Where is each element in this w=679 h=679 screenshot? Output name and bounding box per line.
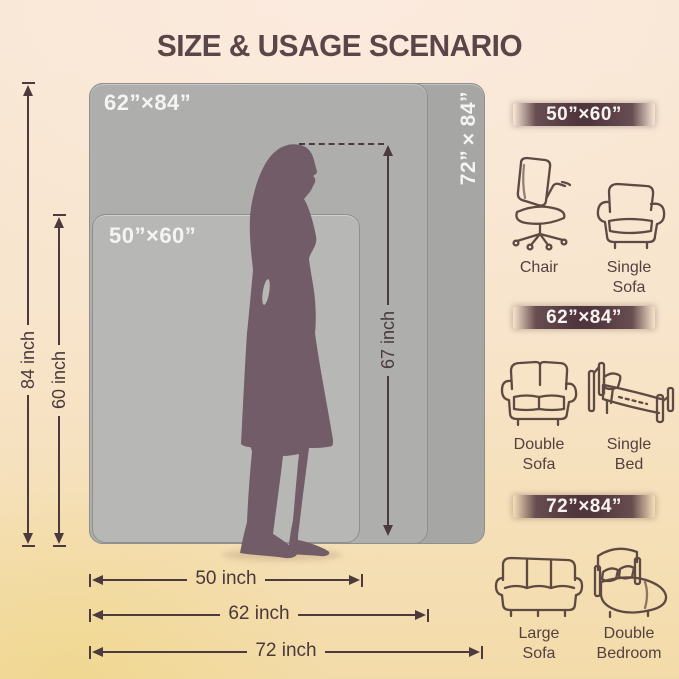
dim-62-inch: 62 inch	[89, 605, 429, 625]
dim-line	[27, 395, 29, 533]
single-sofa-icon	[588, 176, 670, 252]
arrow-left-icon	[92, 647, 103, 657]
dim-cap	[53, 545, 66, 547]
dim-72-label: 72 inch	[247, 640, 324, 662]
size-badge-62x84: 62”×84”	[513, 306, 655, 329]
usage-item-chair	[496, 156, 582, 252]
usage-item-single-bed	[586, 355, 672, 429]
dim-62-label: 62 inch	[220, 603, 297, 625]
standing-woman-silhouette	[212, 142, 352, 562]
usage-item-single-sofa	[586, 176, 672, 252]
office-chair-icon	[505, 156, 573, 252]
arrow-up-icon	[23, 85, 33, 96]
single-bed-icon	[583, 355, 675, 429]
size-usage-infographic: SIZE & USAGE SCENARIO 72”×84” 62”×84” 50…	[0, 0, 679, 679]
arrow-right-icon	[349, 575, 360, 585]
blanket-rect-62x84-label: 62”×84”	[104, 90, 191, 116]
usage-label-double-sofa: Double Sofa	[496, 435, 582, 476]
dim-line	[103, 614, 220, 616]
usage-label-single-bed: Single Bed	[586, 435, 672, 476]
dim-line	[387, 376, 389, 525]
dim-cap	[427, 609, 429, 622]
dim-line	[27, 96, 29, 325]
arrow-right-icon	[469, 647, 480, 657]
dim-cap	[361, 574, 363, 587]
head-height-dashed-line	[299, 143, 384, 145]
dim-line	[387, 156, 389, 305]
dim-line	[58, 228, 60, 345]
dim-cap	[53, 214, 66, 216]
dim-84-label: 84 inch	[18, 325, 39, 395]
usage-label-double-bed: Double Bedroom	[586, 624, 672, 665]
size-badge-50x60: 50”×60”	[513, 103, 655, 126]
dim-line	[265, 579, 349, 581]
dim-cap	[22, 82, 35, 84]
usage-item-double-sofa	[496, 355, 582, 429]
arrow-down-icon	[23, 533, 33, 544]
dim-67-label: 67 inch	[378, 305, 399, 375]
dim-50-inch: 50 inch	[89, 570, 363, 590]
dim-84-inch: 84 inch	[17, 82, 39, 547]
scenario-72x84: 72”×84”	[494, 495, 674, 665]
dim-line	[325, 651, 469, 653]
arrow-down-icon	[54, 533, 64, 544]
arrow-left-icon	[92, 610, 103, 620]
dim-60-inch: 60 inch	[48, 214, 70, 547]
dim-67-inch: 67 inch	[377, 145, 399, 536]
dim-line	[103, 651, 247, 653]
dim-line	[58, 416, 60, 533]
blanket-rect-72x84-label: 72”×84”	[457, 91, 481, 185]
usage-item-large-sofa	[496, 550, 582, 618]
arrow-down-icon	[383, 525, 393, 536]
dim-60-label: 60 inch	[49, 345, 70, 415]
scenario-50x60: 50”×60”	[494, 103, 674, 299]
blanket-rect-50x60-label: 50”×60”	[109, 223, 196, 249]
arrow-up-icon	[54, 217, 64, 228]
arrow-up-icon	[383, 145, 393, 156]
usage-label-large-sofa: Large Sofa	[496, 624, 582, 665]
arrow-right-icon	[415, 610, 426, 620]
page-title: SIZE & USAGE SCENARIO	[14, 28, 666, 64]
usage-label-single-sofa: Single Sofa	[586, 258, 672, 299]
dim-cap	[89, 574, 91, 587]
dim-cap	[89, 609, 91, 622]
double-sofa-icon	[496, 355, 582, 429]
size-badge-72x84: 72”×84”	[513, 495, 655, 518]
arrow-left-icon	[92, 575, 103, 585]
dim-72-inch: 72 inch	[89, 642, 483, 662]
dim-cap	[481, 646, 483, 659]
double-bed-icon	[585, 542, 673, 618]
scenario-62x84: 62”×84”	[494, 306, 674, 476]
usage-item-double-bed	[586, 542, 672, 618]
dim-line	[103, 579, 187, 581]
dim-line	[298, 614, 415, 616]
large-sofa-icon	[492, 550, 586, 618]
dim-cap	[89, 646, 91, 659]
usage-label-chair: Chair	[496, 258, 582, 299]
dim-cap	[22, 545, 35, 547]
dim-50-label: 50 inch	[187, 568, 264, 590]
